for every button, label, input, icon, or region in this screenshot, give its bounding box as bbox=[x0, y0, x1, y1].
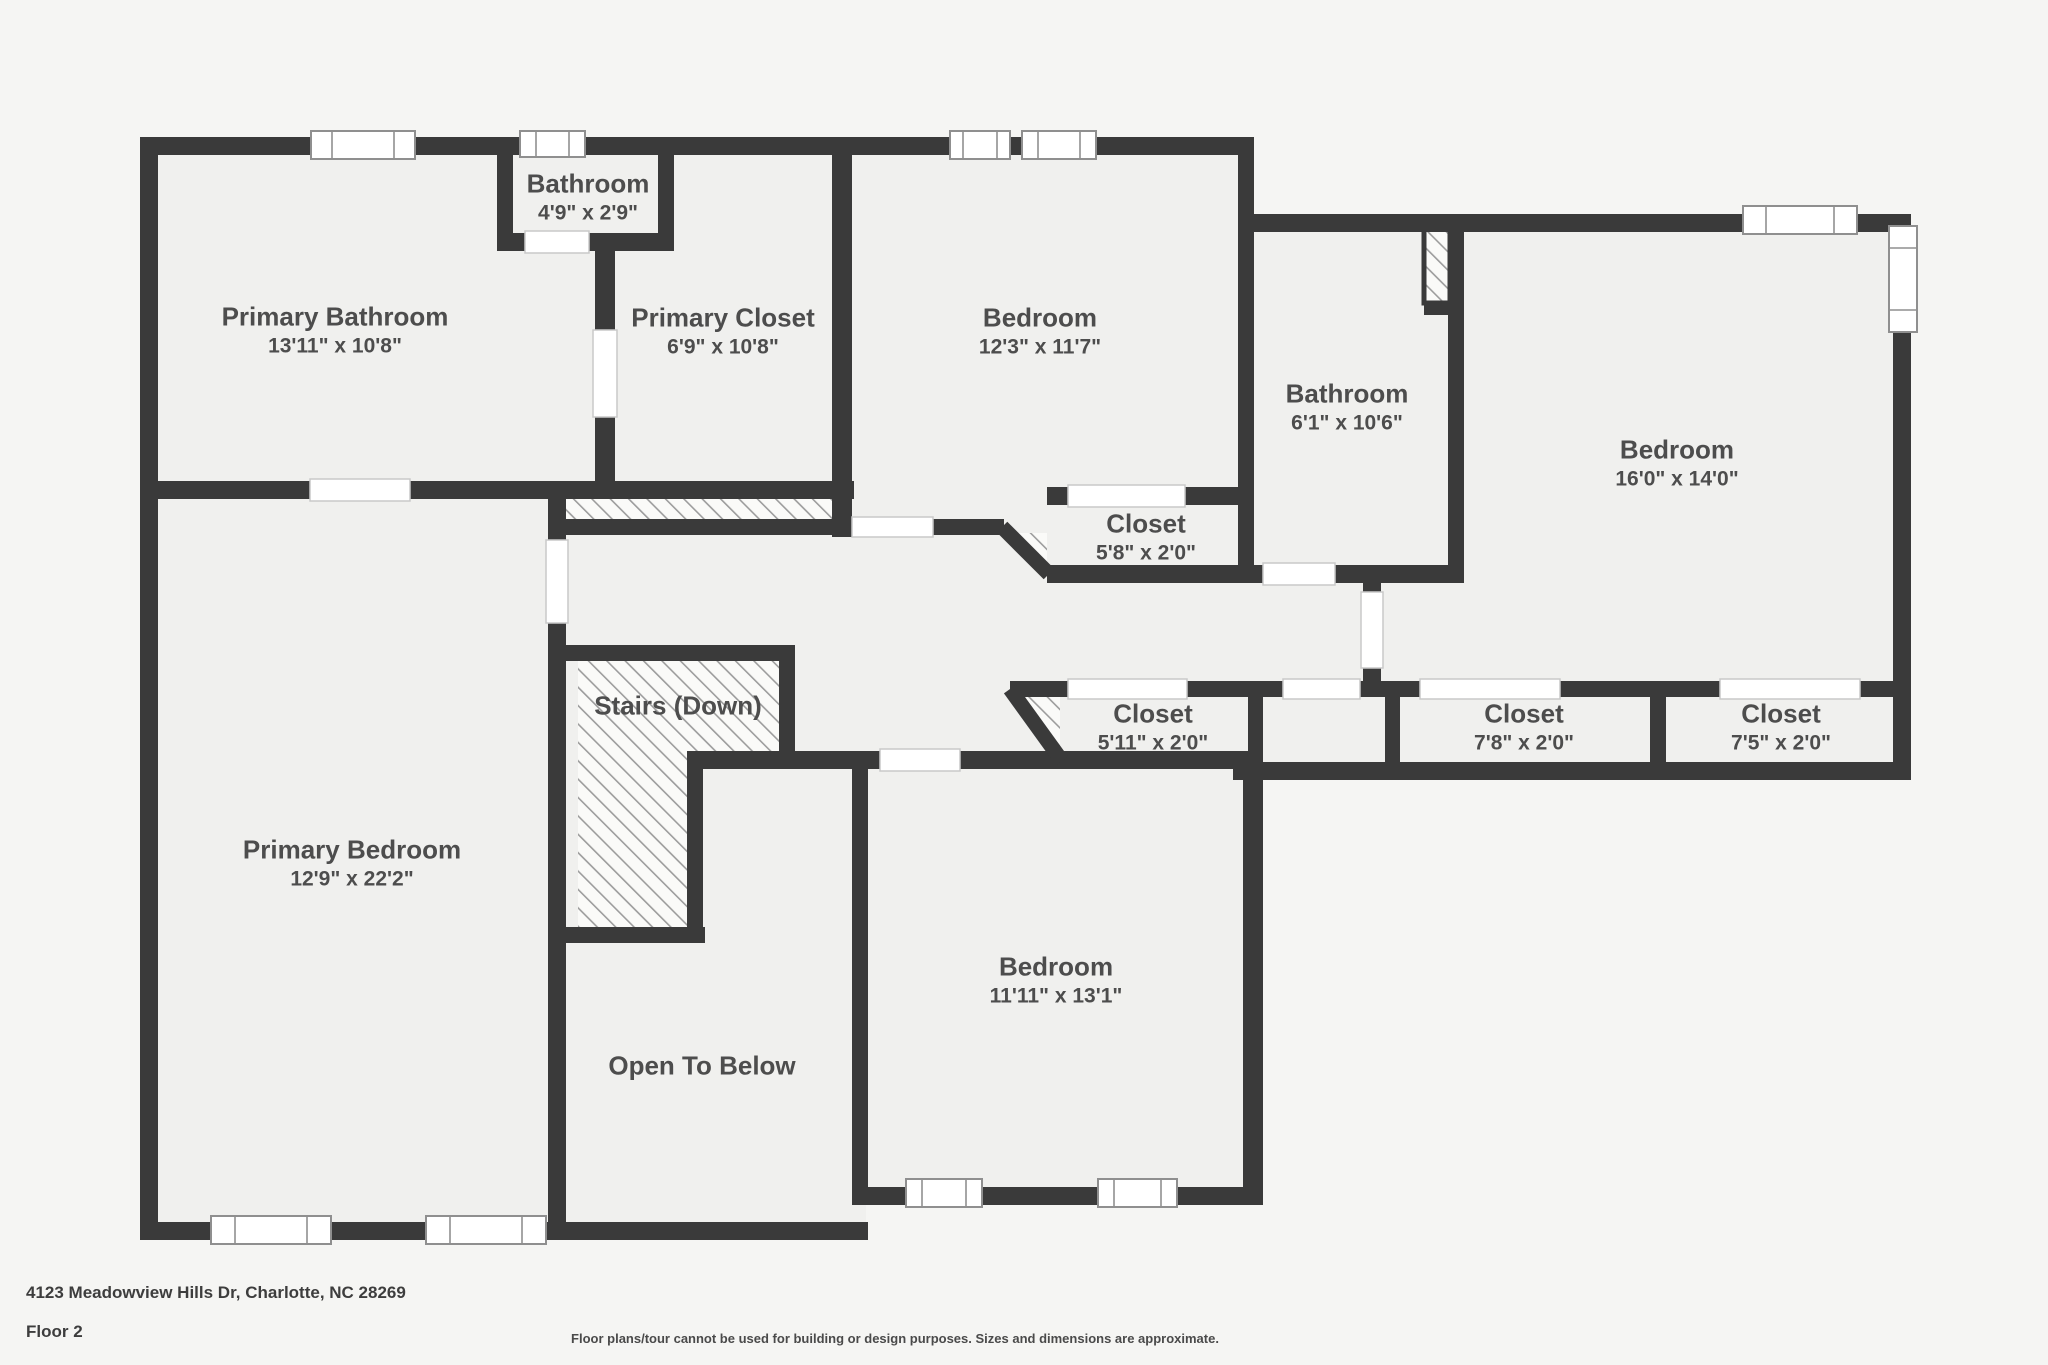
duct-chase-hatch bbox=[1424, 228, 1450, 303]
footer-disclaimer: Floor plans/tour cannot be used for buil… bbox=[571, 1331, 1219, 1346]
floorplan-canvas: Primary Bathroom 13'11" x 10'8" Bathroom… bbox=[0, 0, 2048, 1365]
footer-floor-label: Floor 2 bbox=[26, 1322, 83, 1342]
overhead-hatch-strip bbox=[566, 499, 832, 519]
floorplan-drawing bbox=[0, 0, 2048, 1365]
footer-address: 4123 Meadowview Hills Dr, Charlotte, NC … bbox=[26, 1283, 406, 1303]
